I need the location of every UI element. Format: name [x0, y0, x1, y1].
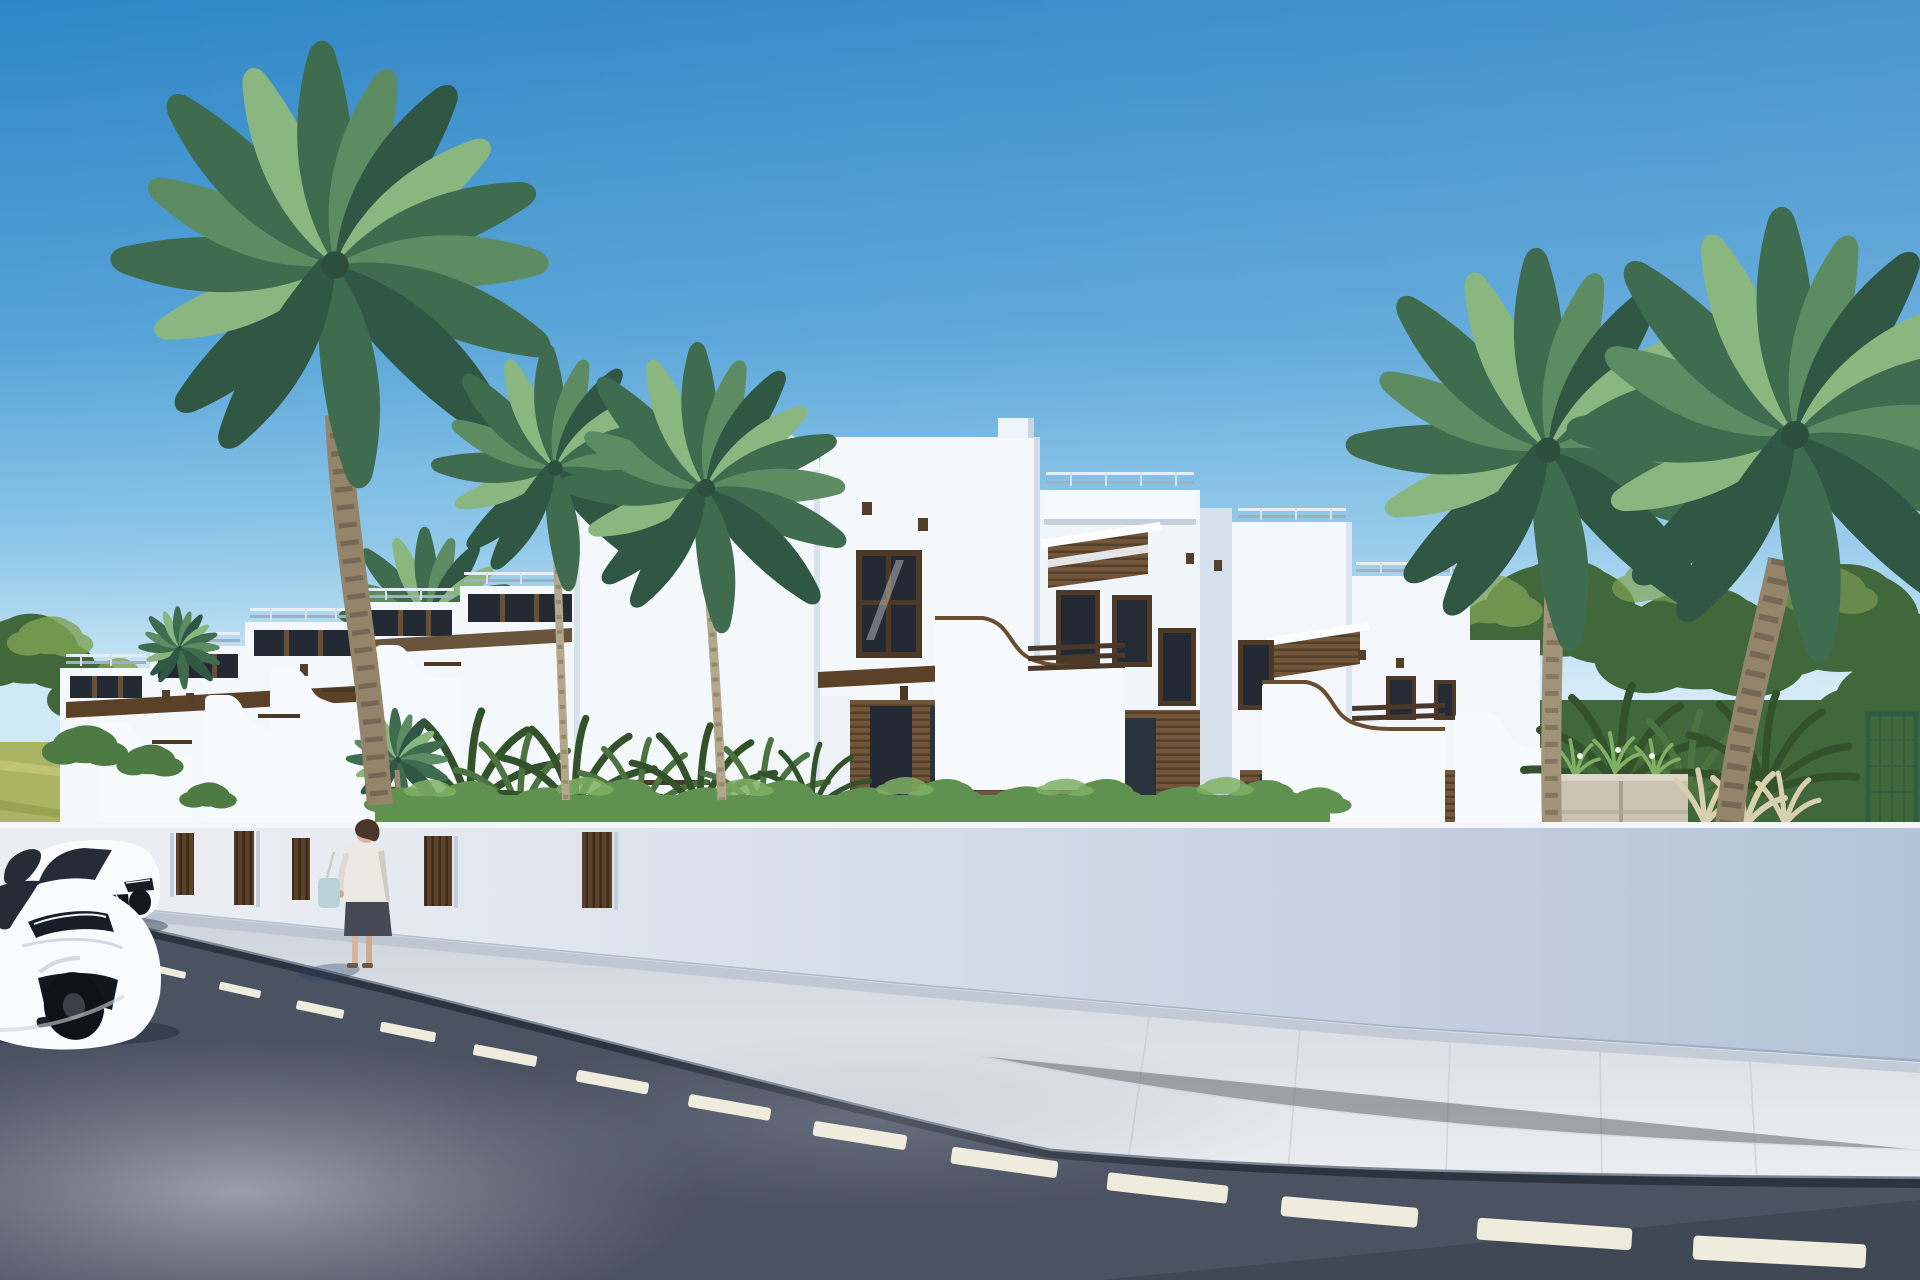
facade-vent: [862, 502, 872, 515]
render-scene: [0, 0, 1920, 1280]
gate: [234, 831, 254, 905]
gate: [582, 832, 612, 908]
skirt: [344, 898, 392, 936]
facade-vent: [918, 518, 928, 531]
gate: [292, 838, 310, 900]
gate: [176, 833, 194, 895]
shoulder-bag: [318, 878, 340, 908]
tower-window: [856, 550, 922, 658]
gate: [424, 836, 452, 906]
